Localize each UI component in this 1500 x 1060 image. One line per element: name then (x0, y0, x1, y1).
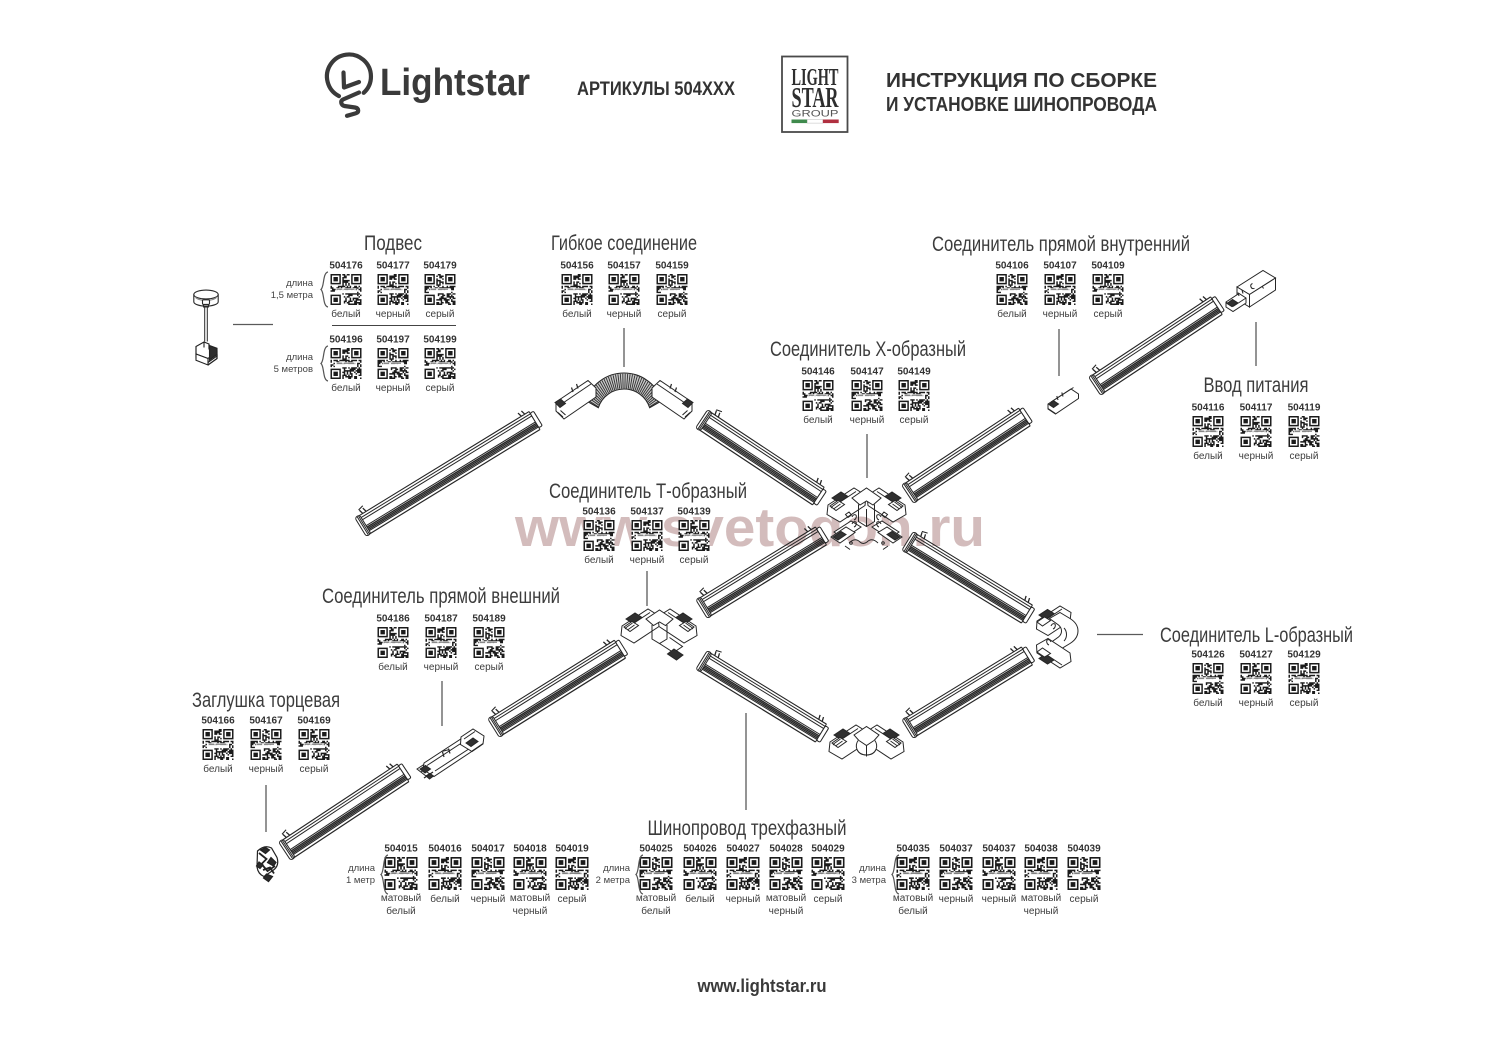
svg-text:матовый: матовый (510, 893, 550, 904)
svg-text:серый: серый (1070, 894, 1099, 905)
svg-text:504037: 504037 (939, 844, 973, 855)
svg-text:Ввод питания: Ввод питания (1204, 374, 1309, 397)
svg-text:504139: 504139 (677, 507, 711, 518)
svg-text:504179: 504179 (423, 261, 457, 272)
svg-text:серый: серый (814, 894, 843, 905)
svg-text:504166: 504166 (201, 716, 235, 727)
svg-text:504149: 504149 (897, 367, 931, 378)
svg-text:черный: черный (471, 894, 506, 905)
svg-text:www.lightstar.ru: www.lightstar.ru (697, 976, 827, 996)
svg-text:1,5 метра: 1,5 метра (271, 290, 314, 301)
svg-text:2 метра: 2 метра (596, 875, 631, 886)
svg-text:черный: черный (607, 309, 642, 320)
svg-text:серый: серый (680, 555, 709, 566)
svg-text:белый: белый (898, 905, 927, 917)
svg-text:серый: серый (1290, 451, 1319, 462)
svg-text:504037: 504037 (982, 844, 1016, 855)
svg-text:504039: 504039 (1067, 844, 1101, 855)
svg-text:черный: черный (249, 764, 284, 775)
svg-text:504018: 504018 (513, 844, 547, 855)
svg-text:черный: черный (850, 415, 885, 426)
svg-text:1 метр: 1 метр (346, 875, 375, 886)
svg-text:504027: 504027 (726, 844, 760, 855)
svg-text:черный: черный (1024, 906, 1059, 917)
svg-text:серый: серый (558, 894, 587, 905)
svg-text:черный: черный (513, 906, 548, 917)
svg-text:504189: 504189 (472, 614, 506, 625)
svg-text:504126: 504126 (1191, 650, 1225, 661)
svg-text:черный: черный (1239, 451, 1274, 462)
svg-text:черный: черный (376, 309, 411, 320)
svg-text:белый: белый (641, 905, 670, 917)
svg-text:белый: белый (803, 414, 832, 426)
svg-text:Соединитель прямой внутренний: Соединитель прямой внутренний (932, 233, 1190, 256)
svg-text:504129: 504129 (1287, 650, 1321, 661)
svg-text:черный: черный (1043, 309, 1078, 320)
svg-text:длина: длина (603, 863, 631, 874)
svg-text:ИНСТРУКЦИЯ ПО СБОРКЕ: ИНСТРУКЦИЯ ПО СБОРКЕ (886, 69, 1157, 92)
svg-text:длина: длина (348, 863, 376, 874)
svg-text:белый: белый (562, 308, 591, 320)
svg-text:504117: 504117 (1240, 403, 1273, 414)
svg-text:серый: серый (658, 309, 687, 320)
svg-text:серый: серый (426, 309, 455, 320)
svg-text:серый: серый (1290, 698, 1319, 709)
svg-text:504026: 504026 (683, 844, 717, 855)
svg-text:504186: 504186 (376, 614, 410, 625)
svg-text:504167: 504167 (249, 716, 283, 727)
svg-text:Соединитель L-образный: Соединитель L-образный (1160, 624, 1353, 647)
svg-text:серый: серый (900, 415, 929, 426)
svg-text:черный: черный (939, 894, 974, 905)
svg-text:белый: белый (378, 661, 407, 673)
svg-text:матовый: матовый (381, 893, 421, 904)
svg-text:504156: 504156 (560, 261, 594, 272)
svg-text:белый: белый (430, 893, 459, 905)
svg-text:504038: 504038 (1024, 844, 1058, 855)
svg-text:504029: 504029 (811, 844, 845, 855)
svg-text:504196: 504196 (329, 335, 363, 346)
svg-text:Заглушка торцевая: Заглушка торцевая (192, 689, 340, 712)
svg-text:504177: 504177 (376, 261, 410, 272)
svg-text:504127: 504127 (1239, 650, 1273, 661)
svg-text:504107: 504107 (1043, 261, 1077, 272)
svg-text:3 метра: 3 метра (852, 875, 887, 886)
svg-text:504169: 504169 (297, 716, 331, 727)
svg-text:белый: белый (685, 893, 714, 905)
svg-text:белый: белый (997, 308, 1026, 320)
svg-text:черный: черный (376, 383, 411, 394)
svg-text:матовый: матовый (636, 893, 676, 904)
svg-text:черный: черный (424, 662, 459, 673)
svg-text:серый: серый (1094, 309, 1123, 320)
svg-text:черный: черный (630, 555, 665, 566)
svg-text:серый: серый (300, 764, 329, 775)
svg-text:белый: белый (331, 308, 360, 320)
svg-text:504017: 504017 (471, 844, 505, 855)
svg-text:белый: белый (331, 382, 360, 394)
svg-text:Соединитель прямой внешний: Соединитель прямой внешний (322, 585, 560, 608)
svg-text:длина: длина (859, 863, 887, 874)
svg-text:504137: 504137 (630, 507, 664, 518)
svg-text:И УСТАНОВКЕ ШИНОПРОВОДА: И УСТАНОВКЕ ШИНОПРОВОДА (886, 93, 1157, 116)
svg-text:Соединитель Т-образный: Соединитель Т-образный (549, 480, 747, 503)
svg-text:длина: длина (286, 278, 314, 289)
svg-text:504187: 504187 (424, 614, 458, 625)
svg-text:504197: 504197 (376, 335, 410, 346)
svg-text:504199: 504199 (423, 335, 457, 346)
svg-text:GROUP: GROUP (792, 109, 839, 119)
svg-text:504035: 504035 (896, 844, 930, 855)
svg-text:матовый: матовый (1021, 893, 1061, 904)
svg-text:504025: 504025 (639, 844, 673, 855)
svg-text:белый: белый (584, 554, 613, 566)
svg-text:длина: длина (286, 352, 314, 363)
svg-text:серый: серый (426, 383, 455, 394)
svg-text:504136: 504136 (582, 507, 616, 518)
svg-text:белый: белый (386, 905, 415, 917)
svg-text:Подвес: Подвес (364, 232, 422, 255)
svg-text:504109: 504109 (1091, 261, 1125, 272)
svg-text:504116: 504116 (1192, 403, 1225, 414)
svg-text:матовый: матовый (893, 893, 933, 904)
svg-text:504015: 504015 (384, 844, 418, 855)
svg-text:Lightstar: Lightstar (380, 62, 530, 104)
svg-text:504146: 504146 (801, 367, 835, 378)
svg-text:Шинопровод трехфазный: Шинопровод трехфазный (648, 817, 847, 840)
svg-text:черный: черный (726, 894, 761, 905)
svg-text:Гибкое соединение: Гибкое соединение (551, 232, 697, 255)
svg-text:Соединитель Х-образный: Соединитель Х-образный (770, 338, 966, 361)
svg-text:белый: белый (203, 763, 232, 775)
svg-text:5 метров: 5 метров (274, 364, 313, 375)
svg-text:504176: 504176 (329, 261, 363, 272)
svg-text:504016: 504016 (428, 844, 462, 855)
svg-text:504147: 504147 (850, 367, 884, 378)
svg-text:матовый: матовый (766, 893, 806, 904)
svg-text:черный: черный (982, 894, 1017, 905)
svg-text:504119: 504119 (1288, 403, 1321, 414)
svg-text:АРТИКУЛЫ 504ХХХ: АРТИКУЛЫ 504ХХХ (577, 79, 735, 100)
svg-text:серый: серый (475, 662, 504, 673)
svg-text:черный: черный (1239, 698, 1274, 709)
svg-text:504019: 504019 (555, 844, 589, 855)
svg-text:504028: 504028 (769, 844, 803, 855)
svg-text:504159: 504159 (655, 261, 689, 272)
svg-text:черный: черный (769, 906, 804, 917)
svg-text:504157: 504157 (607, 261, 641, 272)
svg-text:белый: белый (1193, 697, 1222, 709)
svg-text:белый: белый (1193, 450, 1222, 462)
svg-text:504106: 504106 (995, 261, 1029, 272)
